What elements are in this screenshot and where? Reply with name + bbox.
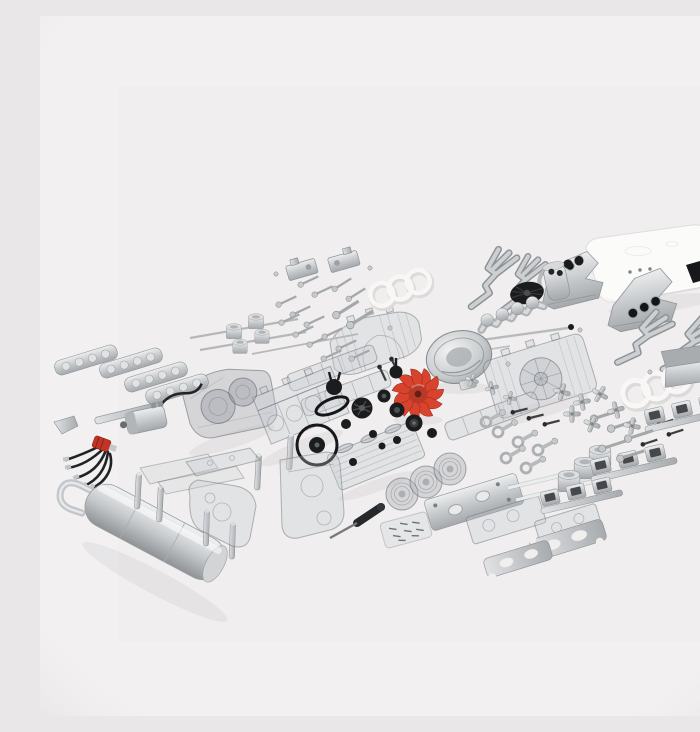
product-photo	[40, 16, 700, 716]
vignette-overlay	[40, 16, 700, 716]
engine-kit-photo	[40, 16, 700, 716]
